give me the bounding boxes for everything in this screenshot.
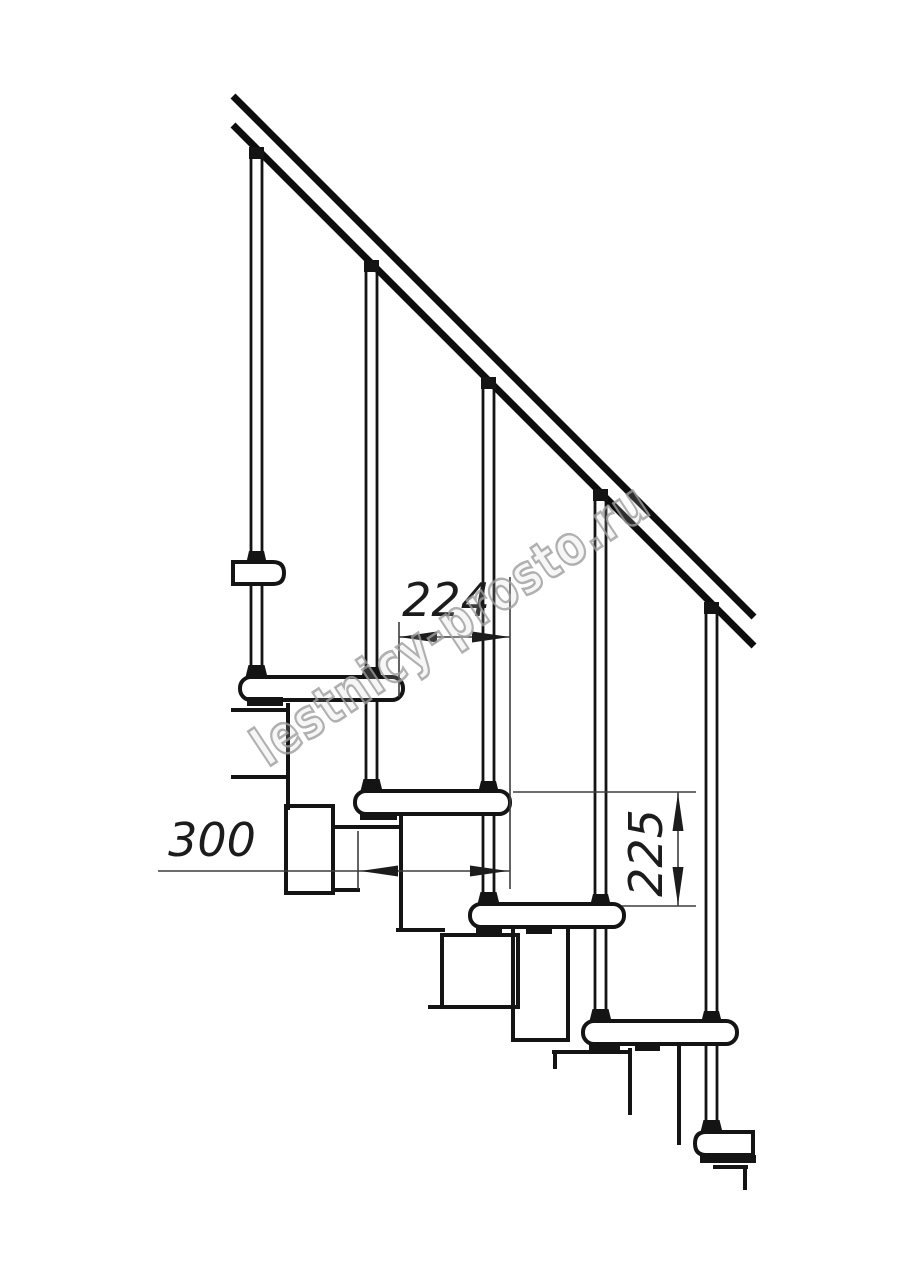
balusters xyxy=(251,158,717,1132)
dimension-run-label: 224 xyxy=(402,573,490,627)
arrow-left xyxy=(360,866,398,877)
module-box-5 xyxy=(554,1044,679,1143)
arrow-right xyxy=(472,632,510,643)
pass-connector-bracket xyxy=(247,551,267,562)
module-chain xyxy=(233,705,746,1188)
module-box-2 xyxy=(286,806,333,893)
mount-strip-5 xyxy=(700,1155,756,1163)
module-box-4 xyxy=(430,935,518,1007)
landing-connector-1 xyxy=(246,665,268,677)
landing-connector-3 xyxy=(478,892,500,904)
arrow-right xyxy=(470,866,508,877)
rail-connector-1 xyxy=(249,147,264,159)
tread-4 xyxy=(583,1021,737,1044)
arrow-down xyxy=(673,867,684,905)
mount-strip-1 xyxy=(247,697,283,706)
rail-connector-5 xyxy=(704,602,719,614)
dimension-rise-225: 225 xyxy=(513,792,696,906)
drawing-canvas: 224 300 225 xyxy=(0,0,914,1280)
pass-connector-1 xyxy=(362,667,382,677)
mount-strip-4b xyxy=(635,1043,660,1051)
baluster-2 xyxy=(366,271,377,791)
module-bottom-step xyxy=(715,1167,746,1188)
arrow-up xyxy=(673,793,684,831)
tread-3 xyxy=(470,904,624,927)
rail-connector-2 xyxy=(364,260,379,272)
rail-connector-4 xyxy=(593,489,608,501)
staircase-drawing: 224 300 225 lestnicy-prosto.ru xyxy=(0,0,914,1280)
pass-connector-3 xyxy=(591,894,611,904)
tread-2 xyxy=(355,791,510,814)
baluster-5 xyxy=(706,613,717,1132)
tread-upper-bracket xyxy=(233,562,284,584)
landing-connector-2 xyxy=(361,779,383,791)
pass-connector-4 xyxy=(702,1011,722,1021)
tread-5 xyxy=(695,1132,753,1155)
dimension-rise-label: 225 xyxy=(619,809,673,897)
mount-strip-2 xyxy=(360,812,397,820)
pass-connector-2 xyxy=(479,781,499,791)
mount-strip-4a xyxy=(589,1043,620,1051)
baluster-4 xyxy=(595,500,606,1021)
baluster-1 xyxy=(251,158,262,677)
module-box-1 xyxy=(233,705,288,808)
rail-connector-3 xyxy=(481,377,496,389)
module-plate-2 xyxy=(398,814,443,930)
tread-1 xyxy=(240,677,403,700)
landing-connector-5 xyxy=(701,1120,723,1132)
module-plate-3 xyxy=(513,930,568,1040)
dimension-depth-label: 300 xyxy=(168,813,256,867)
mount-strip-3a xyxy=(476,925,502,934)
mount-strip-3b xyxy=(526,925,552,934)
landing-connector-4 xyxy=(590,1009,612,1021)
baluster-3 xyxy=(483,388,494,904)
arrow-left xyxy=(399,632,437,643)
module-box-3 xyxy=(333,827,401,890)
